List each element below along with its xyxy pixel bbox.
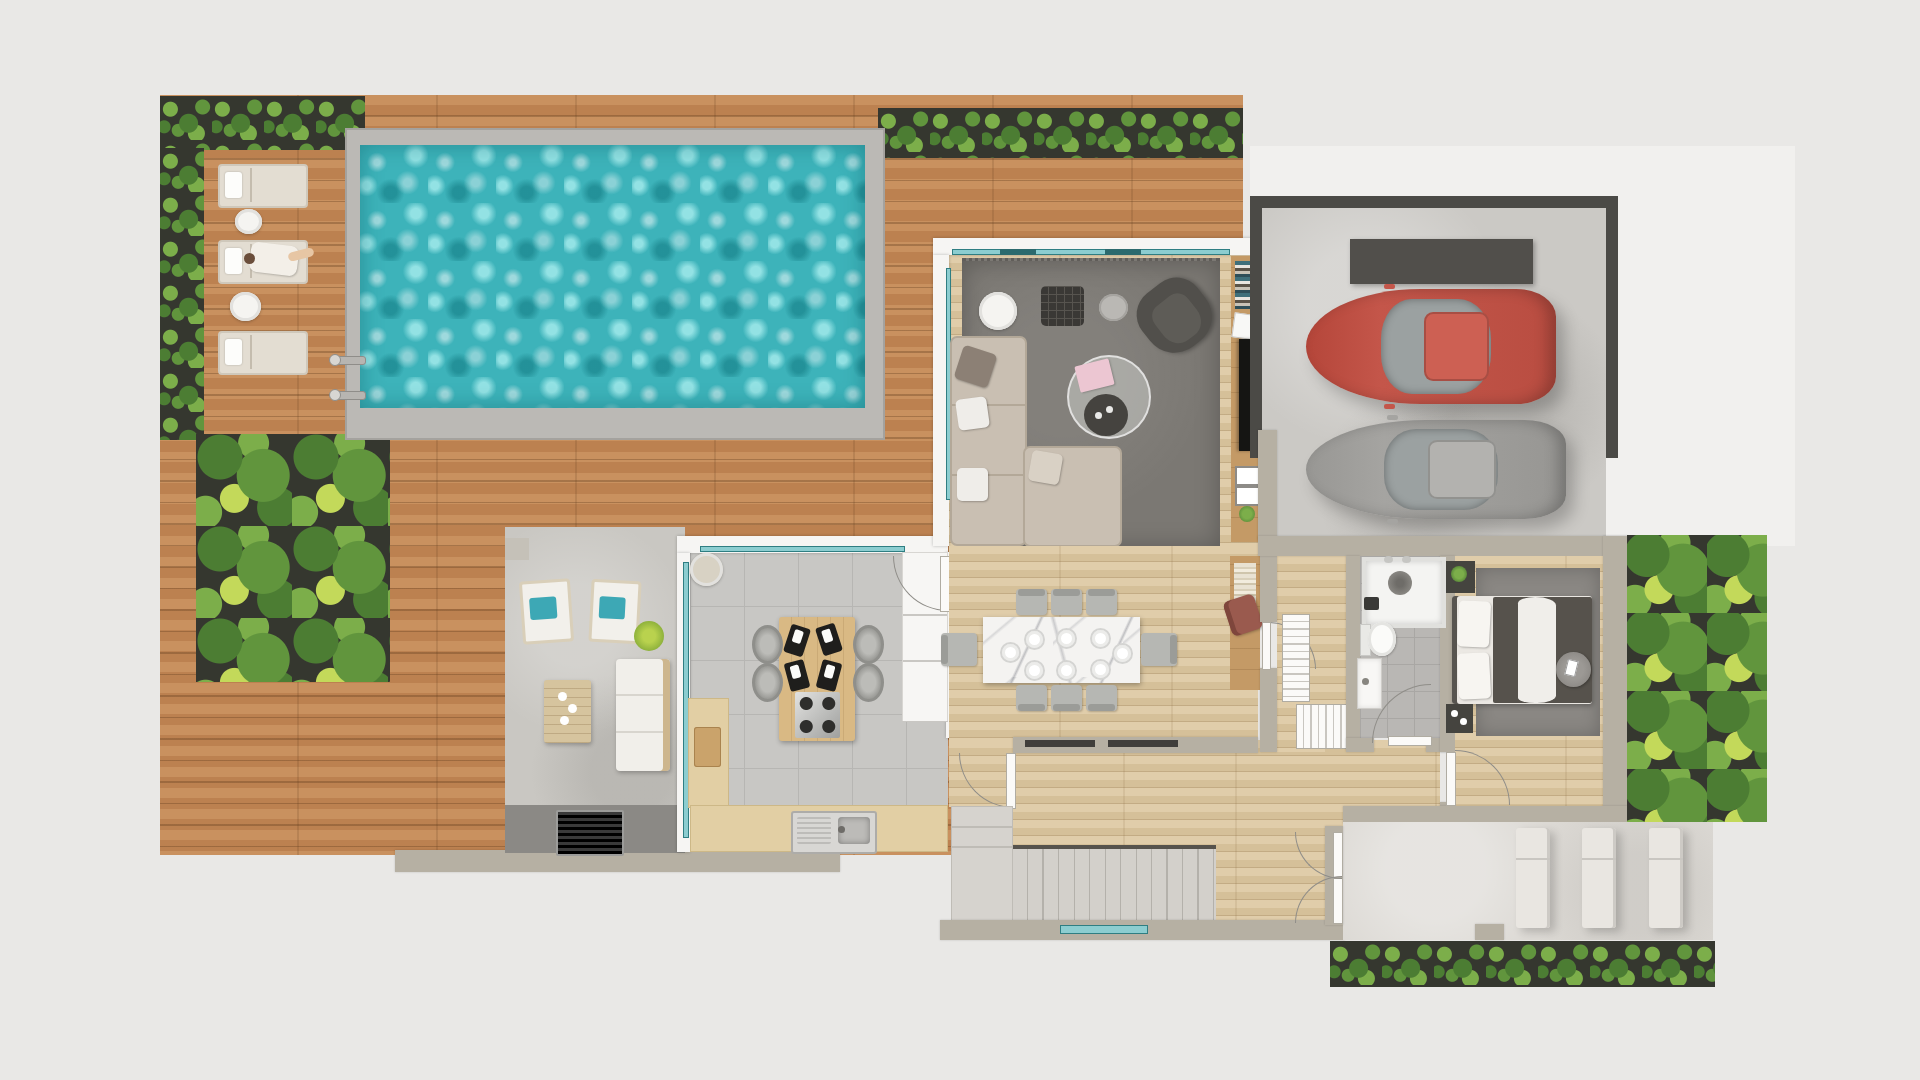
kitchen-sink (791, 811, 877, 854)
car-mirror (1387, 415, 1398, 420)
corridor-west-wall (1260, 556, 1277, 622)
nightstand-cup (1451, 710, 1458, 717)
ottoman (1041, 286, 1084, 326)
car-roof (1424, 312, 1489, 381)
place-setting (1000, 642, 1021, 663)
patio-coffee-table (544, 680, 591, 743)
south-window (1060, 925, 1148, 934)
terrace-pillar (1475, 924, 1504, 940)
nightstand (1446, 704, 1473, 733)
bath-door-leaf (1388, 736, 1432, 746)
hedge-top-middle (878, 108, 1243, 158)
sofa-pillow (955, 396, 990, 431)
pool-ladder-knob (329, 354, 341, 366)
shower-drain (1388, 571, 1412, 595)
coffee-table-tray (1084, 394, 1128, 436)
sun-lounger (218, 164, 308, 208)
palm-garden (196, 434, 390, 682)
dining-chair (1051, 685, 1082, 711)
car-mirror (1384, 284, 1395, 289)
stair-landing (951, 806, 1013, 925)
car-mirror (1387, 519, 1398, 524)
kitchen-north-window (700, 546, 905, 552)
dining-chair (1016, 589, 1047, 615)
bbq-grill (556, 810, 624, 856)
place-setting (1024, 629, 1045, 650)
bath-west-wall (1346, 556, 1360, 748)
nightstand-plant (1451, 566, 1467, 582)
deck-side-table (235, 209, 262, 234)
car-mirror (1384, 404, 1395, 409)
corridor-west-wall (1260, 668, 1277, 752)
place-setting (1090, 659, 1111, 680)
place-setting (1024, 660, 1045, 681)
breakfast-table (690, 553, 723, 586)
patio-shrub (634, 621, 664, 651)
patio-wall-stub (505, 538, 529, 560)
bath-south-wall (1346, 738, 1374, 752)
stair-step-line (951, 846, 1013, 848)
terrace-lounger (1516, 828, 1550, 928)
dining-chair (1141, 633, 1177, 666)
console-plant (1239, 506, 1255, 522)
rear-hedge (1330, 941, 1715, 987)
hall-closet (1297, 705, 1352, 748)
shower-control (1364, 597, 1379, 610)
sofa-pillow (957, 468, 988, 501)
staircase-treads (1013, 845, 1216, 929)
hall-closet (1283, 615, 1309, 701)
bedroom-east-wall (1603, 536, 1628, 824)
car-roof (1428, 440, 1496, 499)
bar-stool (853, 663, 884, 702)
swimming-pool (360, 145, 865, 408)
floor-plan (0, 0, 1920, 1080)
shower-head (1402, 556, 1411, 563)
sun-lounger (218, 331, 308, 375)
side-table-gray (1099, 294, 1128, 321)
dining-chair (1086, 589, 1117, 615)
car-red (1306, 289, 1556, 404)
terrace-lounger (1582, 828, 1616, 928)
hedge-top-left (160, 96, 365, 150)
sliding-door-track (1025, 740, 1095, 747)
side-table-white (979, 292, 1017, 330)
deck-side-table (230, 292, 261, 321)
side-garden (1627, 535, 1767, 822)
sliding-door-track (1108, 740, 1178, 747)
armchair-seat (1147, 288, 1208, 350)
bar-stool (853, 625, 884, 664)
bar-stool (752, 663, 783, 702)
stair-step-line (951, 826, 1013, 828)
living-north-glazing (952, 249, 1230, 255)
tray-cup (1106, 406, 1113, 413)
place-setting (1056, 628, 1077, 649)
vanity-faucet (1362, 678, 1369, 685)
nightstand-cup (1460, 718, 1467, 725)
garage-door-leaf (1262, 622, 1271, 670)
person-head (244, 253, 255, 264)
place-setting (1056, 660, 1077, 681)
garage-west-wall (1250, 196, 1262, 458)
hedge-left (160, 148, 204, 440)
pool-ladder-knob (329, 389, 341, 401)
garage-storage-cabinet (1350, 239, 1533, 284)
dining-chair (1086, 685, 1117, 711)
sofa-pillow (1028, 450, 1064, 486)
place-setting (1090, 628, 1111, 649)
bedroom-door-leaf (1446, 752, 1456, 806)
toilet (1368, 622, 1396, 656)
glazing-frame (1105, 249, 1141, 255)
patio-sofa (616, 659, 670, 771)
terrace-lounger (1649, 828, 1683, 928)
place-setting (1112, 643, 1133, 664)
cutting-board (694, 727, 721, 767)
bed-pillow (1457, 600, 1491, 648)
bed-pillow (1457, 652, 1491, 700)
teal-cushion (599, 596, 626, 619)
main-interior-wall (1258, 536, 1628, 556)
bar-stool (752, 625, 783, 664)
shower-head (1384, 556, 1393, 563)
bed-throw (1518, 597, 1556, 703)
garage-living-wall (1258, 430, 1277, 540)
dining-chair (1016, 685, 1047, 711)
coffee-cup (560, 716, 569, 725)
dining-chair (941, 633, 977, 666)
garage-north-wall (1250, 196, 1618, 208)
sink-faucet (838, 826, 845, 833)
glazing-frame (1000, 249, 1036, 255)
tray-cup (1095, 412, 1102, 419)
island-cooktop (795, 692, 840, 738)
teal-cushion (529, 596, 557, 620)
coffee-cup (568, 704, 577, 713)
coffee-cup (558, 692, 567, 701)
dining-chair (1051, 589, 1082, 615)
garage-east-wall (1606, 196, 1618, 458)
car-gray (1306, 420, 1566, 519)
hall-door-leaf (1006, 753, 1016, 809)
vanity-sink (1357, 658, 1382, 709)
patio-deck-chair (519, 578, 574, 644)
